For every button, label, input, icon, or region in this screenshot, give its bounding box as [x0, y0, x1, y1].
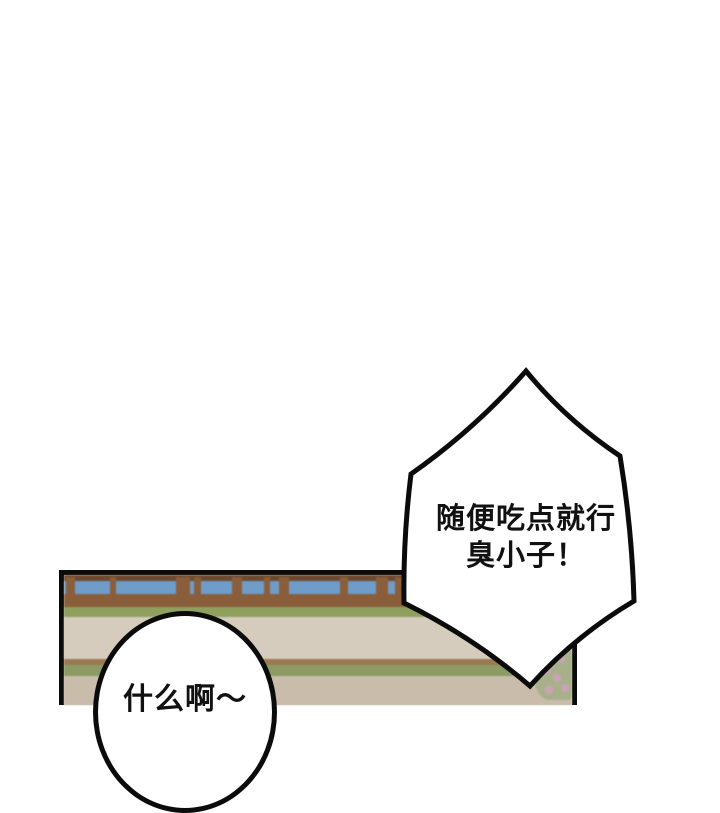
shout-bubble-text-line2: 臭小子！: [400, 538, 652, 575]
reply-speech-bubble: 什么啊～: [93, 611, 277, 813]
shout-bubble-text: 随便吃点就行 臭小子！: [400, 501, 652, 575]
reply-bubble-text: 什么啊～: [98, 674, 272, 718]
shout-bubble-text-line1: 随便吃点就行: [400, 501, 652, 538]
comic-page: { "bubbles": { "shout": { "line1": "随便吃点…: [0, 0, 720, 700]
